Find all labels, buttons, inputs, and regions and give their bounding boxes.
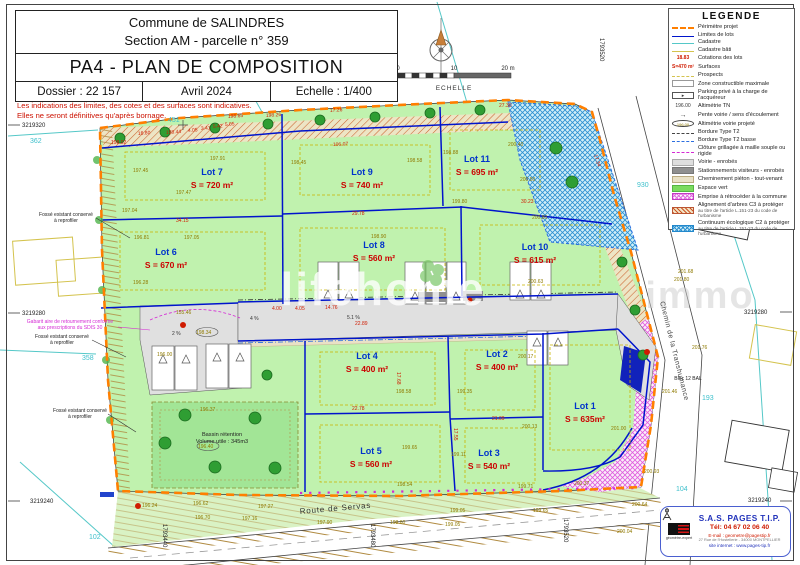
lot-area-label: S = 635m² [565,414,605,424]
map-annotation: 199.05 [450,508,466,514]
legend-label: Voirie - enrobés [698,159,737,165]
legend-label: Altimétrie TN [698,103,730,109]
surveyor-card-icons: géomètre-expert [665,523,693,540]
lot-area-label: S = 720 m² [191,180,233,190]
grid-coordinate: 1793440 [161,524,167,548]
legend-label: Bordure Type T2 [698,129,739,135]
plan-scale: Echelle : 1/400 [270,82,397,101]
legend-row: →Pente voirie / sens d'écoulement [672,112,791,119]
legend-row: Zone constructible maximale [672,80,791,87]
section-line: Section AM - parcelle n° 359 [16,32,397,50]
legend-row: S=470 m²Surfaces [672,64,791,71]
lot-name-label: Lot 3 [478,448,500,458]
plan-date: Avril 2024 [142,82,269,101]
map-annotation: 196.70 [195,515,211,521]
map-annotation: 200.37 [574,481,590,487]
legend-swatch-line-yellow [672,51,694,52]
lot-name-label: Lot 11 [464,154,490,164]
legend-label: Continuum écologique C2 à protégerau tit… [698,220,791,236]
map-annotation: 197.05 [184,235,200,241]
lot-area-label: S = 400 m² [476,362,518,372]
map-annotation: 198.88 [443,150,459,156]
map-annotation: 201.46 [662,389,678,395]
map-annotation: 200.93 [644,469,660,475]
watermark-text: lifehome [280,263,485,315]
lot-area-label: S = 400 m² [346,364,388,374]
legend-swatch-hatch-magenta [672,193,694,200]
map-annotation: 196.62 [193,501,209,507]
parcel-number: 358 [82,355,94,362]
map-annotation: 198.26 [266,112,282,119]
legend-label: Pente voirie / sens d'écoulement [698,112,779,118]
map-annotation: 29.78 [352,211,365,217]
map-annotation: 198.90 [371,234,387,240]
grid-coordinate: 3219240 [748,498,772,504]
plan-sheet: lifehome immo 0 10 20 m [0,0,800,565]
surveyor-card-text: S.A.S. PAGES T.I.P. Tél: 04 67 02 06 40 … [693,514,786,549]
map-annotation: 198.58 [396,389,412,395]
scale-label: ECHELLE [436,85,473,92]
scale-10: 10 [451,66,458,72]
cadastre-buildings-west [13,235,107,299]
map-annotation: 196.40 [198,444,214,450]
legend-row: Limites de lots [672,32,791,38]
map-annotation: 199.05 [445,522,461,528]
north-arrow [430,18,452,78]
map-annotation: 2 % [172,331,181,337]
parcel-number: 104 [676,486,688,493]
map-annotation: 196.24 [142,503,158,509]
map-annotation: 201.80 [674,277,690,283]
legend-row: Cheminement piéton - tout-venant [672,176,791,183]
legend-swatch-text-black: 196.00 [672,103,694,110]
map-annotation: 198.45 [291,160,307,166]
map-annotation: 197.91 [210,156,226,162]
lot-name-label: Lot 9 [351,167,373,177]
map-annotation: 198.44 [166,129,182,136]
geometre-expert-caption: géomètre-expert [666,536,692,540]
legend-label: Cotations des lots [698,55,742,61]
legend-title: LEGENDE [672,11,791,22]
lot-area-label: S = 695 m² [456,167,498,177]
map-annotation: 27.30 [499,103,512,109]
company-name: S.A.S. PAGES T.I.P. [693,514,786,524]
legend-swatch-arrow: → [672,112,694,119]
road-servas [108,488,665,565]
map-annotation: 197.16 [242,516,258,522]
map-annotation: 5.1 % [347,315,360,321]
lot-name-label: Lot 10 [522,242,549,252]
plan-note-line: à reprofiler [50,340,74,346]
legend-label: Clôture grillagée à maille souple ou rig… [698,145,791,157]
map-annotation: 199.65 [402,445,418,451]
legend-label: Limites de lots [698,32,734,38]
map-annotation: 22.89 [355,321,368,327]
map-annotation: 4.05 [295,306,305,312]
grid-coordinate: 3219280 [744,310,768,316]
parcel-number: 102 [89,534,101,541]
legend-label: Stationnements visiteurs - enrobés [698,168,784,174]
map-annotation: 199.71 [518,484,534,490]
map-annotation: 201.00 [611,426,627,432]
map-annotation: 5.05 [225,121,235,128]
legend-sublabel: au titre de l'article L.151-23 du code d… [698,226,791,236]
parcel-number: 930 [637,182,649,189]
map-annotation: 21.09 [492,416,505,422]
map-annotation: 197.27 [258,504,274,510]
grid-coordinate: 3219280 [22,311,46,317]
basin-label-1: Bassin rétention [202,432,242,438]
map-annotation: 5.42 [213,123,223,130]
legend-swatch-box-white [672,80,694,87]
legend-label: Prospects [698,72,723,78]
map-annotation: 200.50 [520,177,536,183]
map-annotation: 200.13 [522,424,538,430]
legend-swatch-box-beige [672,176,694,183]
lot-area-label: S = 560 m² [353,253,395,263]
geometre-expert-logo [668,523,690,535]
legend-label: Alignement d'arbres C3 à protégerau titr… [698,202,791,218]
lot-name-label: Lot 8 [363,240,385,250]
map-annotation: 199.80 [452,199,468,205]
legend-row: Voirie - enrobés [672,159,791,166]
legend-swatch-line-cyan [672,43,694,44]
legend-row: Bordure Type T2 [672,129,791,135]
legend-row: 18.83Cotations des lots [672,55,791,62]
map-annotation: 17.68 [395,372,401,385]
legend-row: Cadastre [672,39,791,45]
legend-swatch-text-red: S=470 m² [672,64,694,71]
legend-label: Cadastre [698,39,721,45]
map-annotation: 201.76 [692,345,708,351]
legend-row: Clôture grillagée à maille souple ou rig… [672,145,791,157]
map-annotation: 196.37 [200,407,216,413]
scale-bar: 0 10 20 m ECHELLE [396,66,514,92]
legend-swatch-text-red: 18.83 [672,55,694,62]
lot-name-label: Lot 7 [201,167,223,177]
title-block-commune: Commune de SALINDRES Section AM - parcel… [16,11,397,54]
map-annotation: 196.00 [157,352,173,358]
map-annotation: 4.00 [272,306,282,312]
grid-coordinate: 1793480 [369,524,375,548]
legend-swatch-line-dark-dash [672,133,694,134]
map-annotation: 200.64 [632,502,648,508]
map-annotation: 199.35 [457,389,473,395]
legend-swatch-box-gray-dark [672,167,694,174]
company-website: site internet : www.pages-tip.fr [693,543,786,549]
legend-swatch-line-blue-dash [672,141,694,142]
legend-row: ▸Parking privé à la charge de l'acquéreu… [672,89,791,101]
disclaimer-line-2: Elles ne seront définitives qu'après bor… [17,111,252,121]
lot-area-label: S = 540 m² [468,461,510,471]
legend-label: Surfaces [698,64,720,70]
legend-swatch-line-magenta [672,152,694,153]
map-annotation: 199.11 [451,452,466,458]
map-annotation: 196.81 [134,235,150,241]
map-annotation: 198.34 [196,330,212,336]
map-annotation: 198.02 [111,140,127,146]
legend-swatch-box-green [672,185,694,192]
map-annotation: 22.78 [352,406,365,412]
scale-20: 20 m [501,66,514,72]
map-annotation: 17.26 [330,107,343,114]
lot-area-label: S = 670 m² [145,260,187,270]
title-block-meta: Dossier : 22 157 Avril 2024 Echelle : 1/… [16,82,397,101]
map-annotation: 16.80 [138,130,151,137]
retention-basin [152,402,298,488]
surveyor-card: géomètre-expert S.A.S. PAGES T.I.P. Tél:… [660,506,791,557]
page-title: PA4 - PLAN DE COMPOSITION [16,54,397,82]
map-annotation: 200.04 [617,529,633,535]
legend-label: Cheminement piéton - tout-venant [698,176,783,182]
legend-row: Espace vert [672,185,791,192]
lot-area-label: S = 740 m² [341,180,383,190]
legend-row: Stationnements visiteurs - enrobés [672,167,791,174]
map-annotation: 198.60 [390,520,406,526]
map-annotation: 198.54 [397,482,413,488]
map-annotation: 196.28 [133,280,149,286]
legend-row: Alignement d'arbres C3 à protégerau titr… [672,202,791,218]
map-annotation: 155.46 [176,310,192,316]
legend-row: Bordure Type T2 basse [672,137,791,143]
map-annotation: 200.17 [518,354,534,360]
legend-label: Altimétrie voirie projeté [698,121,755,127]
map-annotation: 4.05 [188,127,198,134]
map-annotation: 197.45 [133,168,149,174]
map-annotation: 3.41 [201,125,211,132]
legend-swatch-hatch-blue [672,225,694,232]
grid-coordinate: 3219320 [22,123,46,129]
legend-swatch-ellipse: 196.00 [672,120,694,127]
legend-row: 196.00Altimétrie voirie projeté [672,120,791,127]
map-annotation: 106.07 [333,141,349,148]
title-block: Commune de SALINDRES Section AM - parcel… [15,10,398,102]
lot-name-label: Lot 4 [356,351,378,361]
plan-note-line: aux prescriptions du SDIS 30 [38,325,103,331]
legend-label: Bordure Type T2 basse [698,137,756,143]
map-annotation: 197.04 [122,208,138,214]
map-annotation: 197.90 [317,520,333,526]
company-phone: Tél: 04 67 02 06 40 [693,524,786,532]
legend-entries: Périmètre projetLimites de lotsCadastreC… [672,24,791,236]
legend-panel: LEGENDE Périmètre projetLimites de lotsC… [668,8,795,230]
map-annotation: 197.47 [176,190,192,196]
legend-label: Emprise à rétrocéder à la commune [698,194,787,200]
commune-line: Commune de SALINDRES [16,14,397,32]
legend-swatch-line-blue [672,36,694,37]
map-annotation: 201.68 [678,269,694,275]
disclaimer-note: Les indications des limites, des cotes e… [17,101,252,122]
map-annotation: 200.63 [528,279,544,285]
map-annotation: 199.65 [533,508,549,514]
legend-label: Espace vert [698,185,728,191]
disclaimer-line-1: Les indications des limites, des cotes e… [17,101,252,111]
legend-row: Emprise à rétrocéder à la commune [672,193,791,200]
lot-name-label: Lot 2 [486,349,508,359]
plan-note-line: à reprofiler [68,414,92,420]
dossier-number: Dossier : 22 157 [16,82,142,101]
lot-name-label: Lot 6 [155,247,177,257]
legend-swatch-box-parking: ▸ [672,92,694,99]
grid-coordinate: 1793520 [598,38,604,62]
map-annotation: 17.55 [452,428,458,441]
map-annotation: 200.40 [508,142,524,148]
legend-row: 196.00Altimétrie TN [672,103,791,110]
theodolite-icon [661,507,673,521]
legend-swatch-line-yellow-thin [672,76,694,77]
map-annotation: 198.58 [407,158,423,164]
legend-row: Prospects [672,72,791,78]
legend-label: Zone constructible maximale [698,81,769,87]
legend-row: Cadastre bâti [672,47,791,53]
legend-swatch-line-orange-dash [672,27,694,29]
lot-area-label: S = 615 m² [514,255,556,265]
map-annotation: 14.76 [325,305,338,311]
grid-coordinate: 1793520 [562,519,568,543]
legend-row: Périmètre projet [672,24,791,30]
legend-row: Continuum écologique C2 à protégerau tit… [672,220,791,236]
lot-area-label: S = 560 m² [350,459,392,469]
grid-coordinate: 3219240 [30,499,54,505]
lot-name-label: Lot 1 [574,401,596,411]
legend-swatch-hatch-red [672,207,694,214]
legend-label: Cadastre bâti [698,47,731,53]
legend-sublabel: au titre de l'article L.151-23 du code d… [698,208,791,218]
plan-note-line: à reprofiler [54,218,78,224]
parcel-number: 193 [702,395,714,402]
parcel-number: 362 [30,138,42,145]
map-annotation: 30.23 [521,199,534,205]
lot-name-label: Lot 5 [360,446,382,456]
plan-note-line: Bloc 12 BAL [674,376,702,382]
map-annotation: 200.80 [532,215,548,221]
legend-label: Parking privé à la charge de l'acquéreur [698,89,791,101]
legend-label: Périmètre projet [698,24,738,30]
map-annotation: 34.15 [176,218,189,224]
map-annotation: 4 % [250,316,259,322]
legend-swatch-box-gray-light [672,159,694,166]
